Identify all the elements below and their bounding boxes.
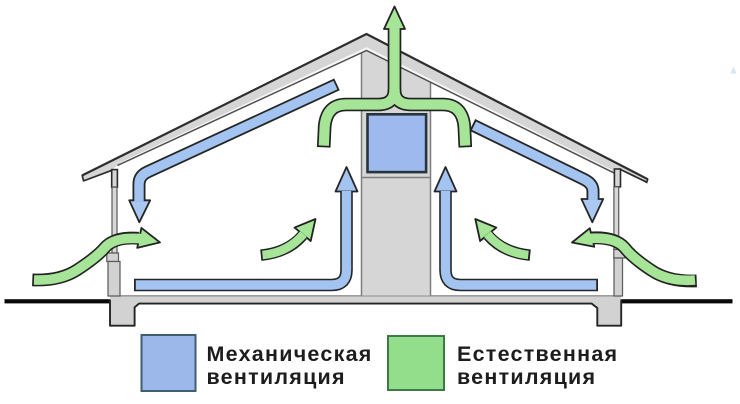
- svg-text:вентиляция: вентиляция: [457, 365, 596, 389]
- svg-text:вентиляция: вентиляция: [207, 365, 346, 389]
- svg-text:Естественная: Естественная: [457, 342, 618, 366]
- svg-text:Механическая: Механическая: [207, 342, 373, 366]
